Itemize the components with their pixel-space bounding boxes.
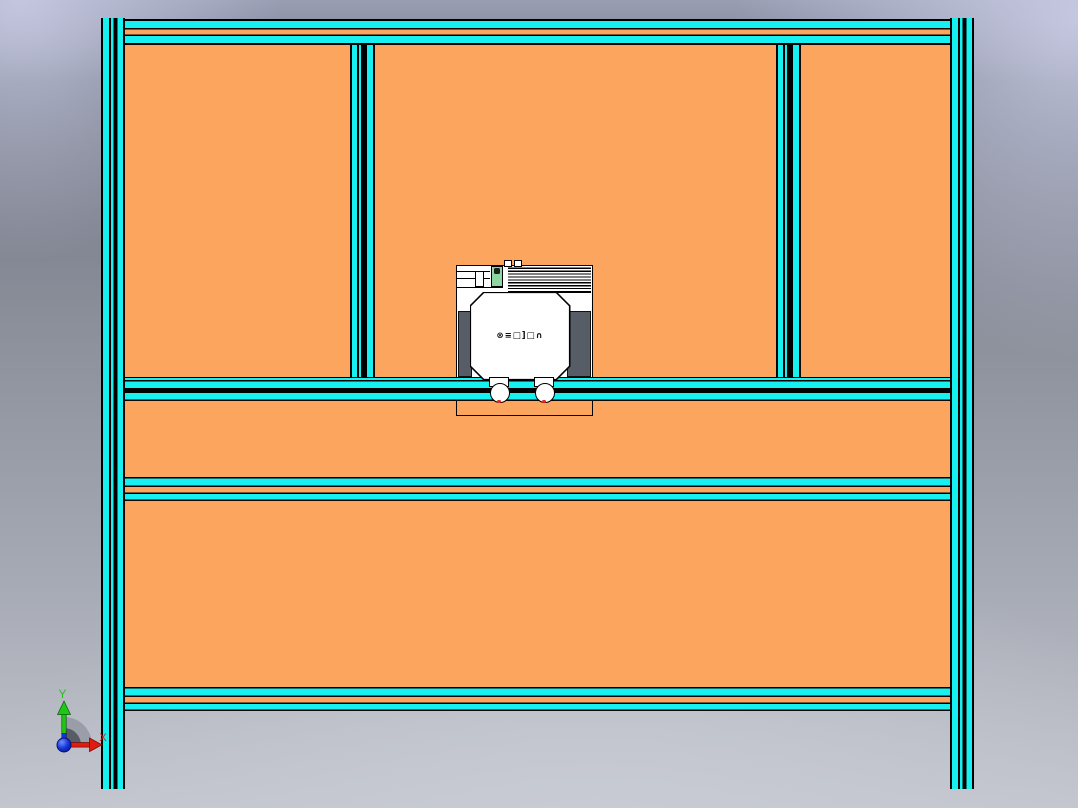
linear-actuator-stripes[interactable] xyxy=(508,266,591,293)
x-axis-shaft xyxy=(70,743,92,748)
bracket-line xyxy=(457,278,490,279)
wheel-contact-mark xyxy=(497,400,501,404)
roller-wheel[interactable] xyxy=(490,383,510,403)
mullion-left[interactable] xyxy=(350,44,375,378)
octagon-plate-face[interactable]: ⊗≡□]□∩ xyxy=(471,293,569,379)
origin-ball xyxy=(57,738,71,752)
bracket-step xyxy=(475,271,484,287)
roller-wheel[interactable] xyxy=(535,383,555,403)
y-axis-label: Y xyxy=(58,687,66,701)
top-tab xyxy=(514,260,522,267)
frame-top-rail[interactable] xyxy=(101,19,974,45)
octagon-plate[interactable]: ⊗≡□]□∩ xyxy=(470,292,571,381)
frame-bottom-rail[interactable] xyxy=(101,687,974,711)
cad-viewport: ⊗≡□]□∩ Y X xyxy=(0,0,1078,808)
frame-mid-rail-lower[interactable] xyxy=(101,477,974,501)
bracket-line xyxy=(457,271,490,272)
mullion-right[interactable] xyxy=(776,44,801,378)
origin-triad: Y X xyxy=(30,672,115,772)
y-axis-arrowhead-icon xyxy=(58,701,71,715)
dark-side-panel-right[interactable] xyxy=(567,311,591,377)
mount-bracket-outline[interactable] xyxy=(456,399,593,416)
logo-text: ⊗≡□]□∩ xyxy=(471,331,569,341)
y-axis-shaft xyxy=(62,714,66,734)
indicator-glyph-icon xyxy=(494,268,500,274)
wheel-contact-mark xyxy=(542,400,546,404)
green-indicator[interactable] xyxy=(491,266,503,287)
x-axis-label: X xyxy=(99,732,107,744)
top-tab xyxy=(504,260,512,267)
frame-right-post[interactable] xyxy=(950,18,974,789)
